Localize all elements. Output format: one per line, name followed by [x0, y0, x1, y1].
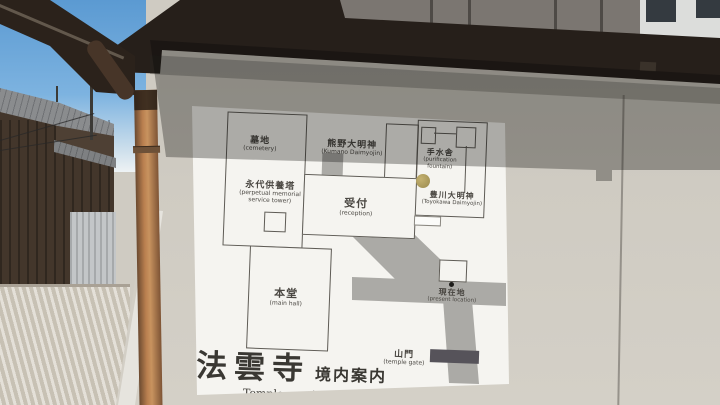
building-window — [696, 0, 720, 18]
map-gap-marker — [414, 216, 441, 227]
scaffold-post — [554, 0, 557, 34]
memorial-tower-square — [264, 212, 287, 233]
current-location-label: 現在地 (present location) — [427, 287, 476, 304]
reception-label: 受付 (reception) — [339, 197, 373, 218]
memorial-tower-label: 永代供養塔 (perpetual memorial service tower) — [239, 180, 302, 206]
corrugated-fence — [70, 212, 116, 294]
gravel-ground — [0, 284, 130, 405]
map-title-jp: 境内案内 — [315, 365, 388, 386]
downspout-bracket — [133, 146, 160, 153]
toyokawa-label: 豊川大明神 (Toyokawa Daimyojin) — [422, 190, 483, 208]
path-vertical — [440, 296, 482, 386]
reception-label-en: (reception) — [339, 210, 372, 218]
gate-label: 山門 (temple gate) — [383, 349, 425, 368]
scaffold-post — [600, 0, 603, 34]
gutter-bracket — [640, 62, 656, 72]
antenna — [56, 86, 58, 102]
you-are-here-dot — [449, 282, 454, 287]
temple-name: 法雲寺 — [196, 348, 311, 388]
reception-corner-marker-dot — [416, 174, 430, 188]
current-location-box — [439, 259, 468, 282]
building-window — [646, 0, 676, 22]
downspout-shaded-top — [134, 90, 157, 110]
gate-bar — [430, 349, 479, 364]
photo-of-temple-map-sign: 墓地 (cemetery) 永代供養塔 (perpetual memorial … — [0, 0, 720, 405]
main-hall-label: 本堂 (main hall) — [269, 287, 302, 308]
main-hall-label-en: (main hall) — [269, 300, 302, 308]
gate-label-en: (temple gate) — [383, 360, 424, 368]
